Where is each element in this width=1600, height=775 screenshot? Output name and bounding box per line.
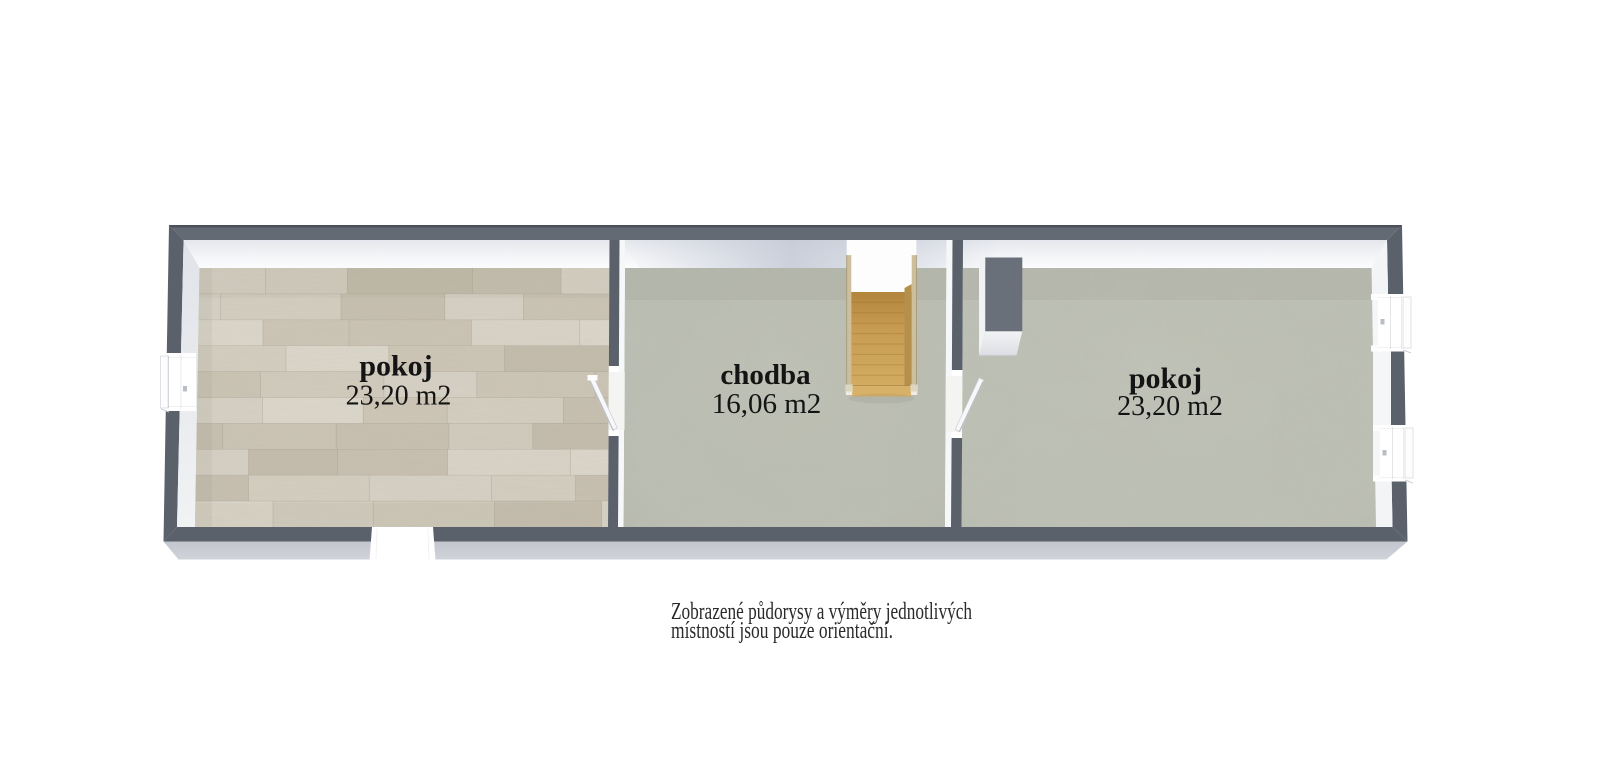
svg-text:16,06 m2: 16,06 m2 xyxy=(712,388,822,420)
svg-text:chodba: chodba xyxy=(720,359,811,391)
svg-text:pokoj: pokoj xyxy=(359,350,432,383)
svg-text:místností jsou pouze orientačn: místností jsou pouze orientační. xyxy=(671,617,893,644)
svg-text:23,20 m2: 23,20 m2 xyxy=(346,381,452,412)
svg-text:23,20 m2: 23,20 m2 xyxy=(1117,391,1223,422)
